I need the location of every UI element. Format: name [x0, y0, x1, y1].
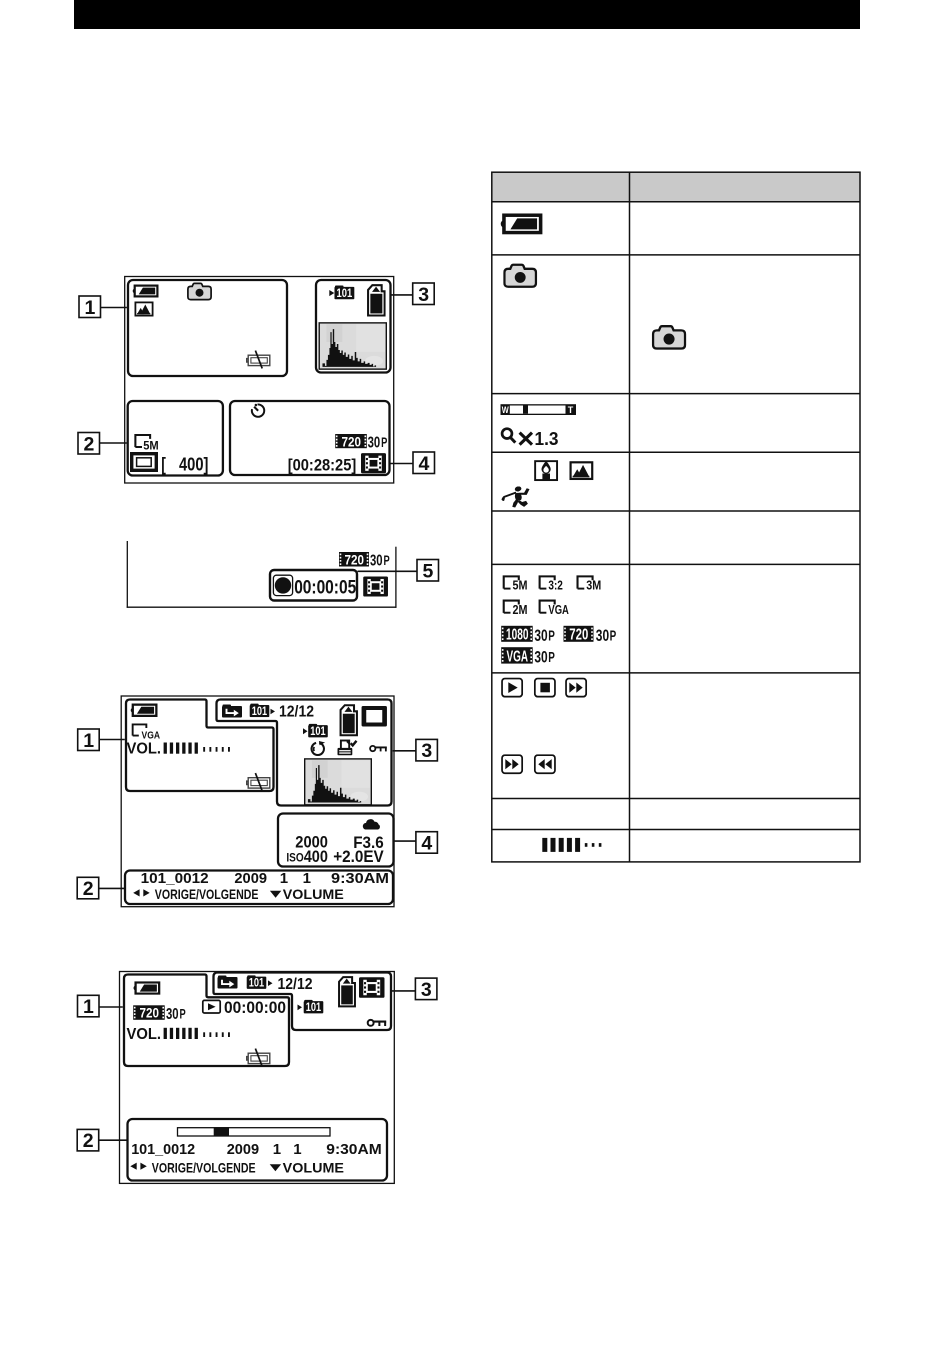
- svg-text:[00:28:25]: [00:28:25]: [288, 456, 357, 474]
- svg-text:1080: 1080: [506, 627, 529, 644]
- svg-text:30: 30: [166, 1006, 179, 1023]
- svg-text:12/12: 12/12: [278, 976, 313, 993]
- svg-text:3: 3: [418, 284, 429, 306]
- svg-text:VGA: VGA: [507, 648, 529, 665]
- svg-text:P: P: [180, 1007, 186, 1022]
- svg-text:12/12: 12/12: [279, 704, 314, 721]
- svg-text:3: 3: [421, 740, 432, 762]
- svg-text:2: 2: [84, 433, 95, 455]
- svg-text:720: 720: [342, 433, 362, 449]
- svg-text:4: 4: [421, 832, 432, 854]
- svg-text:400: 400: [304, 847, 328, 866]
- svg-text:2: 2: [83, 1130, 94, 1152]
- svg-text:30: 30: [534, 647, 547, 666]
- svg-text:P: P: [610, 629, 617, 645]
- svg-text:W: W: [502, 405, 509, 415]
- svg-text:400]: 400]: [179, 453, 208, 474]
- svg-text:30: 30: [370, 552, 383, 569]
- svg-text:5: 5: [423, 560, 434, 582]
- svg-text:720: 720: [140, 1005, 160, 1021]
- svg-text:VOL.: VOL.: [127, 741, 162, 758]
- svg-text:VOL.: VOL.: [127, 1026, 162, 1043]
- svg-text:30: 30: [534, 626, 547, 645]
- svg-text:101_0012: 101_0012: [141, 870, 209, 887]
- svg-text:+2.0EV: +2.0EV: [333, 847, 384, 866]
- svg-text:9:30AM: 9:30AM: [331, 870, 389, 887]
- svg-text:[: [: [161, 453, 166, 474]
- svg-text:ISO: ISO: [286, 853, 303, 865]
- svg-text:1: 1: [303, 870, 311, 887]
- svg-text:4: 4: [419, 453, 430, 475]
- svg-text:2009: 2009: [227, 1141, 259, 1158]
- svg-text:VOLUME: VOLUME: [283, 886, 344, 902]
- svg-text:VOLUME: VOLUME: [283, 1160, 344, 1176]
- svg-text:P: P: [548, 629, 555, 645]
- svg-text:1: 1: [280, 870, 288, 887]
- svg-text:P: P: [381, 435, 387, 450]
- svg-text:1: 1: [273, 1141, 281, 1158]
- svg-text:P: P: [548, 650, 555, 666]
- svg-text:VORIGE/VOLGENDE: VORIGE/VOLGENDE: [155, 886, 259, 902]
- svg-text:T: T: [568, 405, 574, 415]
- svg-text:00:00:00: 00:00:00: [224, 999, 286, 1017]
- svg-text:101_0012: 101_0012: [131, 1141, 195, 1158]
- svg-text:720: 720: [345, 551, 365, 567]
- svg-text:30: 30: [368, 434, 381, 451]
- svg-text:VGA: VGA: [548, 603, 569, 617]
- svg-text:1.3: 1.3: [535, 428, 559, 449]
- svg-text:2009: 2009: [234, 870, 267, 887]
- svg-text:2: 2: [83, 878, 94, 900]
- svg-text:30: 30: [596, 626, 609, 645]
- svg-text:3:2: 3:2: [548, 579, 563, 593]
- svg-text:5M: 5M: [513, 579, 528, 593]
- svg-text:2M: 2M: [513, 603, 528, 617]
- svg-text:1: 1: [293, 1141, 301, 1158]
- svg-text:VORIGE/VOLGENDE: VORIGE/VOLGENDE: [152, 1160, 256, 1176]
- svg-text:3M: 3M: [586, 579, 601, 593]
- svg-text:3: 3: [421, 979, 432, 1001]
- svg-text:720: 720: [569, 627, 588, 644]
- svg-text:9:30AM: 9:30AM: [326, 1141, 381, 1158]
- svg-text:1: 1: [83, 996, 94, 1018]
- svg-text:1: 1: [85, 297, 96, 319]
- svg-text:P: P: [384, 553, 390, 568]
- svg-text:5M: 5M: [143, 440, 159, 452]
- svg-text:00:00:05: 00:00:05: [294, 578, 356, 599]
- svg-text:1: 1: [83, 730, 94, 752]
